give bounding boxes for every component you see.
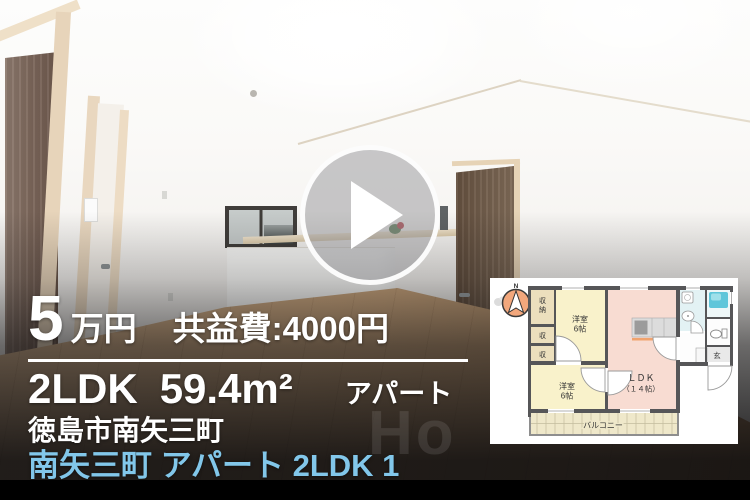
play-icon bbox=[351, 181, 403, 249]
label-west2-name: 洋室 bbox=[559, 381, 575, 391]
label-ldk-name: ＬＤＫ bbox=[627, 373, 654, 383]
label-closet-big-1: 収 bbox=[539, 297, 546, 305]
play-button[interactable] bbox=[300, 145, 440, 285]
label-closet-big-2: 納 bbox=[539, 305, 546, 314]
floorplan-card: N bbox=[490, 278, 738, 444]
bottom-letterbox-bar bbox=[0, 480, 750, 500]
divider-line bbox=[28, 359, 468, 362]
listing-info: 5 万円 共益費:4000円 2LDK 59.4m² アパート 徳島市南矢三町 … bbox=[28, 282, 476, 483]
label-ldk-size: （１４帖） bbox=[622, 384, 660, 394]
bathtub-highlight bbox=[711, 294, 721, 301]
price-row: 5 万円 共益費:4000円 bbox=[28, 286, 476, 350]
label-entrance: 玄 bbox=[713, 350, 721, 360]
toilet-icon bbox=[711, 329, 728, 338]
layout-value: 2LDK bbox=[28, 368, 138, 410]
label-balcony: バルコニー bbox=[583, 421, 623, 430]
floorplan-drawing: N bbox=[490, 278, 738, 444]
label-west2-size: 6帖 bbox=[561, 391, 573, 401]
compass-icon: N bbox=[494, 283, 530, 317]
listing-card[interactable]: Ho 5 万円 共益費:4000円 2LDK 59.4m² アパート 徳島市南矢… bbox=[0, 0, 750, 500]
price-value: 5 bbox=[28, 286, 64, 350]
label-west1-size: 6帖 bbox=[574, 324, 586, 334]
area-value: 59.4m² bbox=[160, 368, 293, 410]
price-unit: 万円 bbox=[71, 312, 137, 345]
washer-icon bbox=[682, 292, 693, 303]
building-type: アパート bbox=[345, 381, 452, 408]
management-fee: 共益費:4000円 bbox=[173, 312, 389, 345]
compass-north-label: N bbox=[514, 283, 519, 290]
label-closet-1: 収 bbox=[539, 332, 546, 340]
listing-title-link[interactable]: 南矢三町 アパート 2LDK 1 bbox=[28, 450, 476, 483]
sink-icon bbox=[682, 311, 694, 321]
specs-row: 2LDK 59.4m² アパート bbox=[28, 368, 476, 410]
label-closet-2: 収 bbox=[539, 351, 546, 359]
address-text: 徳島市南矢三町 bbox=[28, 416, 476, 445]
label-west1-name: 洋室 bbox=[572, 314, 588, 324]
